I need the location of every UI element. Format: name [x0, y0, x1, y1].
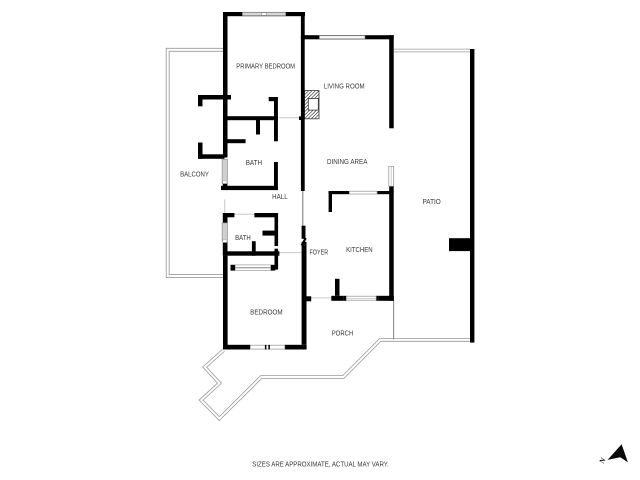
svg-text:BALCONY: BALCONY: [180, 170, 209, 178]
svg-text:DINING AREA: DINING AREA: [327, 158, 368, 166]
svg-text:PRIMARY BEDROOM: PRIMARY BEDROOM: [236, 62, 295, 70]
svg-text:BATH: BATH: [246, 159, 262, 167]
svg-text:HALL: HALL: [272, 193, 288, 201]
svg-text:PORCH: PORCH: [332, 330, 354, 338]
svg-text:BEDROOM: BEDROOM: [250, 308, 283, 316]
svg-text:FOYER: FOYER: [310, 248, 329, 256]
svg-text:LIVING ROOM: LIVING ROOM: [324, 83, 365, 91]
svg-text:BATH: BATH: [235, 234, 251, 242]
svg-text:PATIO: PATIO: [423, 198, 442, 206]
svg-text:SIZES ARE APPROXIMATE, ACTUAL: SIZES ARE APPROXIMATE, ACTUAL MAY VARY.: [252, 460, 389, 469]
svg-text:KITCHEN: KITCHEN: [346, 246, 373, 254]
